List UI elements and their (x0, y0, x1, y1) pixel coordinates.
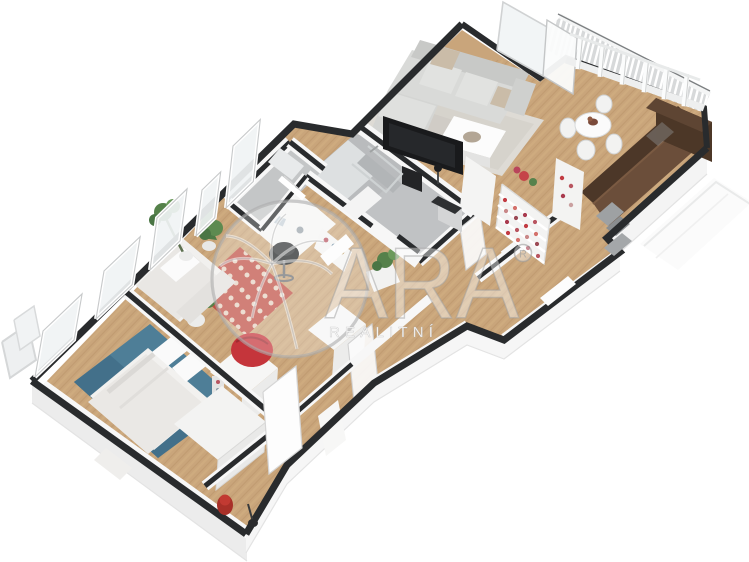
svg-text:REALITNÍ: REALITNÍ (329, 324, 438, 341)
svg-text:R: R (519, 249, 527, 261)
